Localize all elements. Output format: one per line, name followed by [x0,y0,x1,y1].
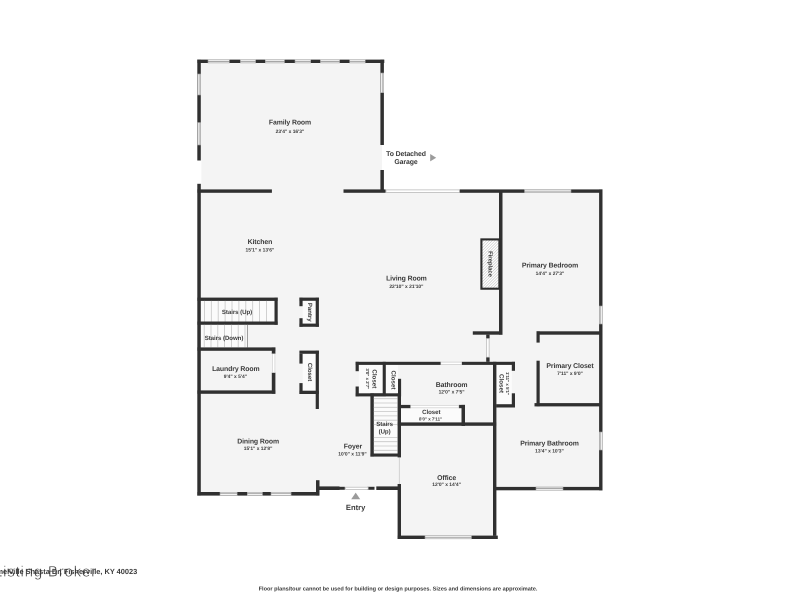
svg-text:Kitchen: Kitchen [248,239,273,246]
svg-text:Bathroom: Bathroom [436,382,468,389]
svg-text:Closet: Closet [371,369,378,388]
svg-text:Fireplace: Fireplace [487,251,494,278]
svg-text:Primary Bedroom: Primary Bedroom [522,263,578,270]
svg-text:23'4" x 16'3": 23'4" x 16'3" [276,129,305,135]
svg-text:Foyer: Foyer [344,443,363,450]
svg-text:15'1" x 12'8": 15'1" x 12'8" [244,446,273,452]
svg-text:Living Room: Living Room [386,275,427,282]
svg-text:13'4" x 10'3": 13'4" x 10'3" [535,448,564,454]
svg-text:Stairs (Up): Stairs (Up) [222,309,252,316]
svg-text:(Up): (Up) [379,429,391,436]
svg-text:Stairs (Down): Stairs (Down) [205,335,244,342]
svg-text:Stairs: Stairs [376,421,393,428]
svg-text:12'0" x 14'4": 12'0" x 14'4" [432,482,461,488]
svg-text:1'11" x 5'1": 1'11" x 5'1" [505,372,510,395]
svg-text:Pantry: Pantry [306,303,313,322]
svg-text:Office: Office [437,475,456,482]
svg-text:Primary Closet: Primary Closet [546,363,594,370]
svg-text:7'11" x 9'0": 7'11" x 9'0" [557,371,583,377]
svg-text:Entry: Entry [346,503,366,512]
svg-text:Dining Room: Dining Room [237,438,279,445]
svg-text:Family Room: Family Room [269,120,311,127]
svg-text:9'4" x 5'4": 9'4" x 5'4" [224,374,247,380]
svg-text:Floor plans/tour cannot be use: Floor plans/tour cannot be used for buil… [259,585,538,592]
svg-text:Closet: Closet [389,371,396,390]
svg-text:14'4" x 27'3": 14'4" x 27'3" [536,271,565,277]
svg-text:22'10" x 21'10": 22'10" x 21'10" [389,284,423,290]
svg-text:Closet: Closet [498,374,505,393]
svg-text:Camelville Shasta Dr, Fishervi: Camelville Shasta Dr, Fisherville, KY 40… [0,567,137,576]
svg-text:12'0" x 7'5": 12'0" x 7'5" [439,389,465,395]
svg-text:3'0" x 2'7": 3'0" x 2'7" [365,368,370,389]
svg-text:Closet: Closet [422,409,440,416]
svg-text:10'0" x 11'9": 10'0" x 11'9" [338,451,366,457]
svg-text:8'0" x 7'11": 8'0" x 7'11" [419,416,442,421]
svg-text:To Detached: To Detached [386,151,426,158]
svg-text:Primary Bathroom: Primary Bathroom [520,440,579,447]
svg-text:Laundry Room: Laundry Room [212,366,259,373]
svg-text:Garage: Garage [394,159,417,166]
svg-text:Closet: Closet [306,363,313,381]
svg-text:15'1" x 13'6": 15'1" x 13'6" [246,247,275,253]
